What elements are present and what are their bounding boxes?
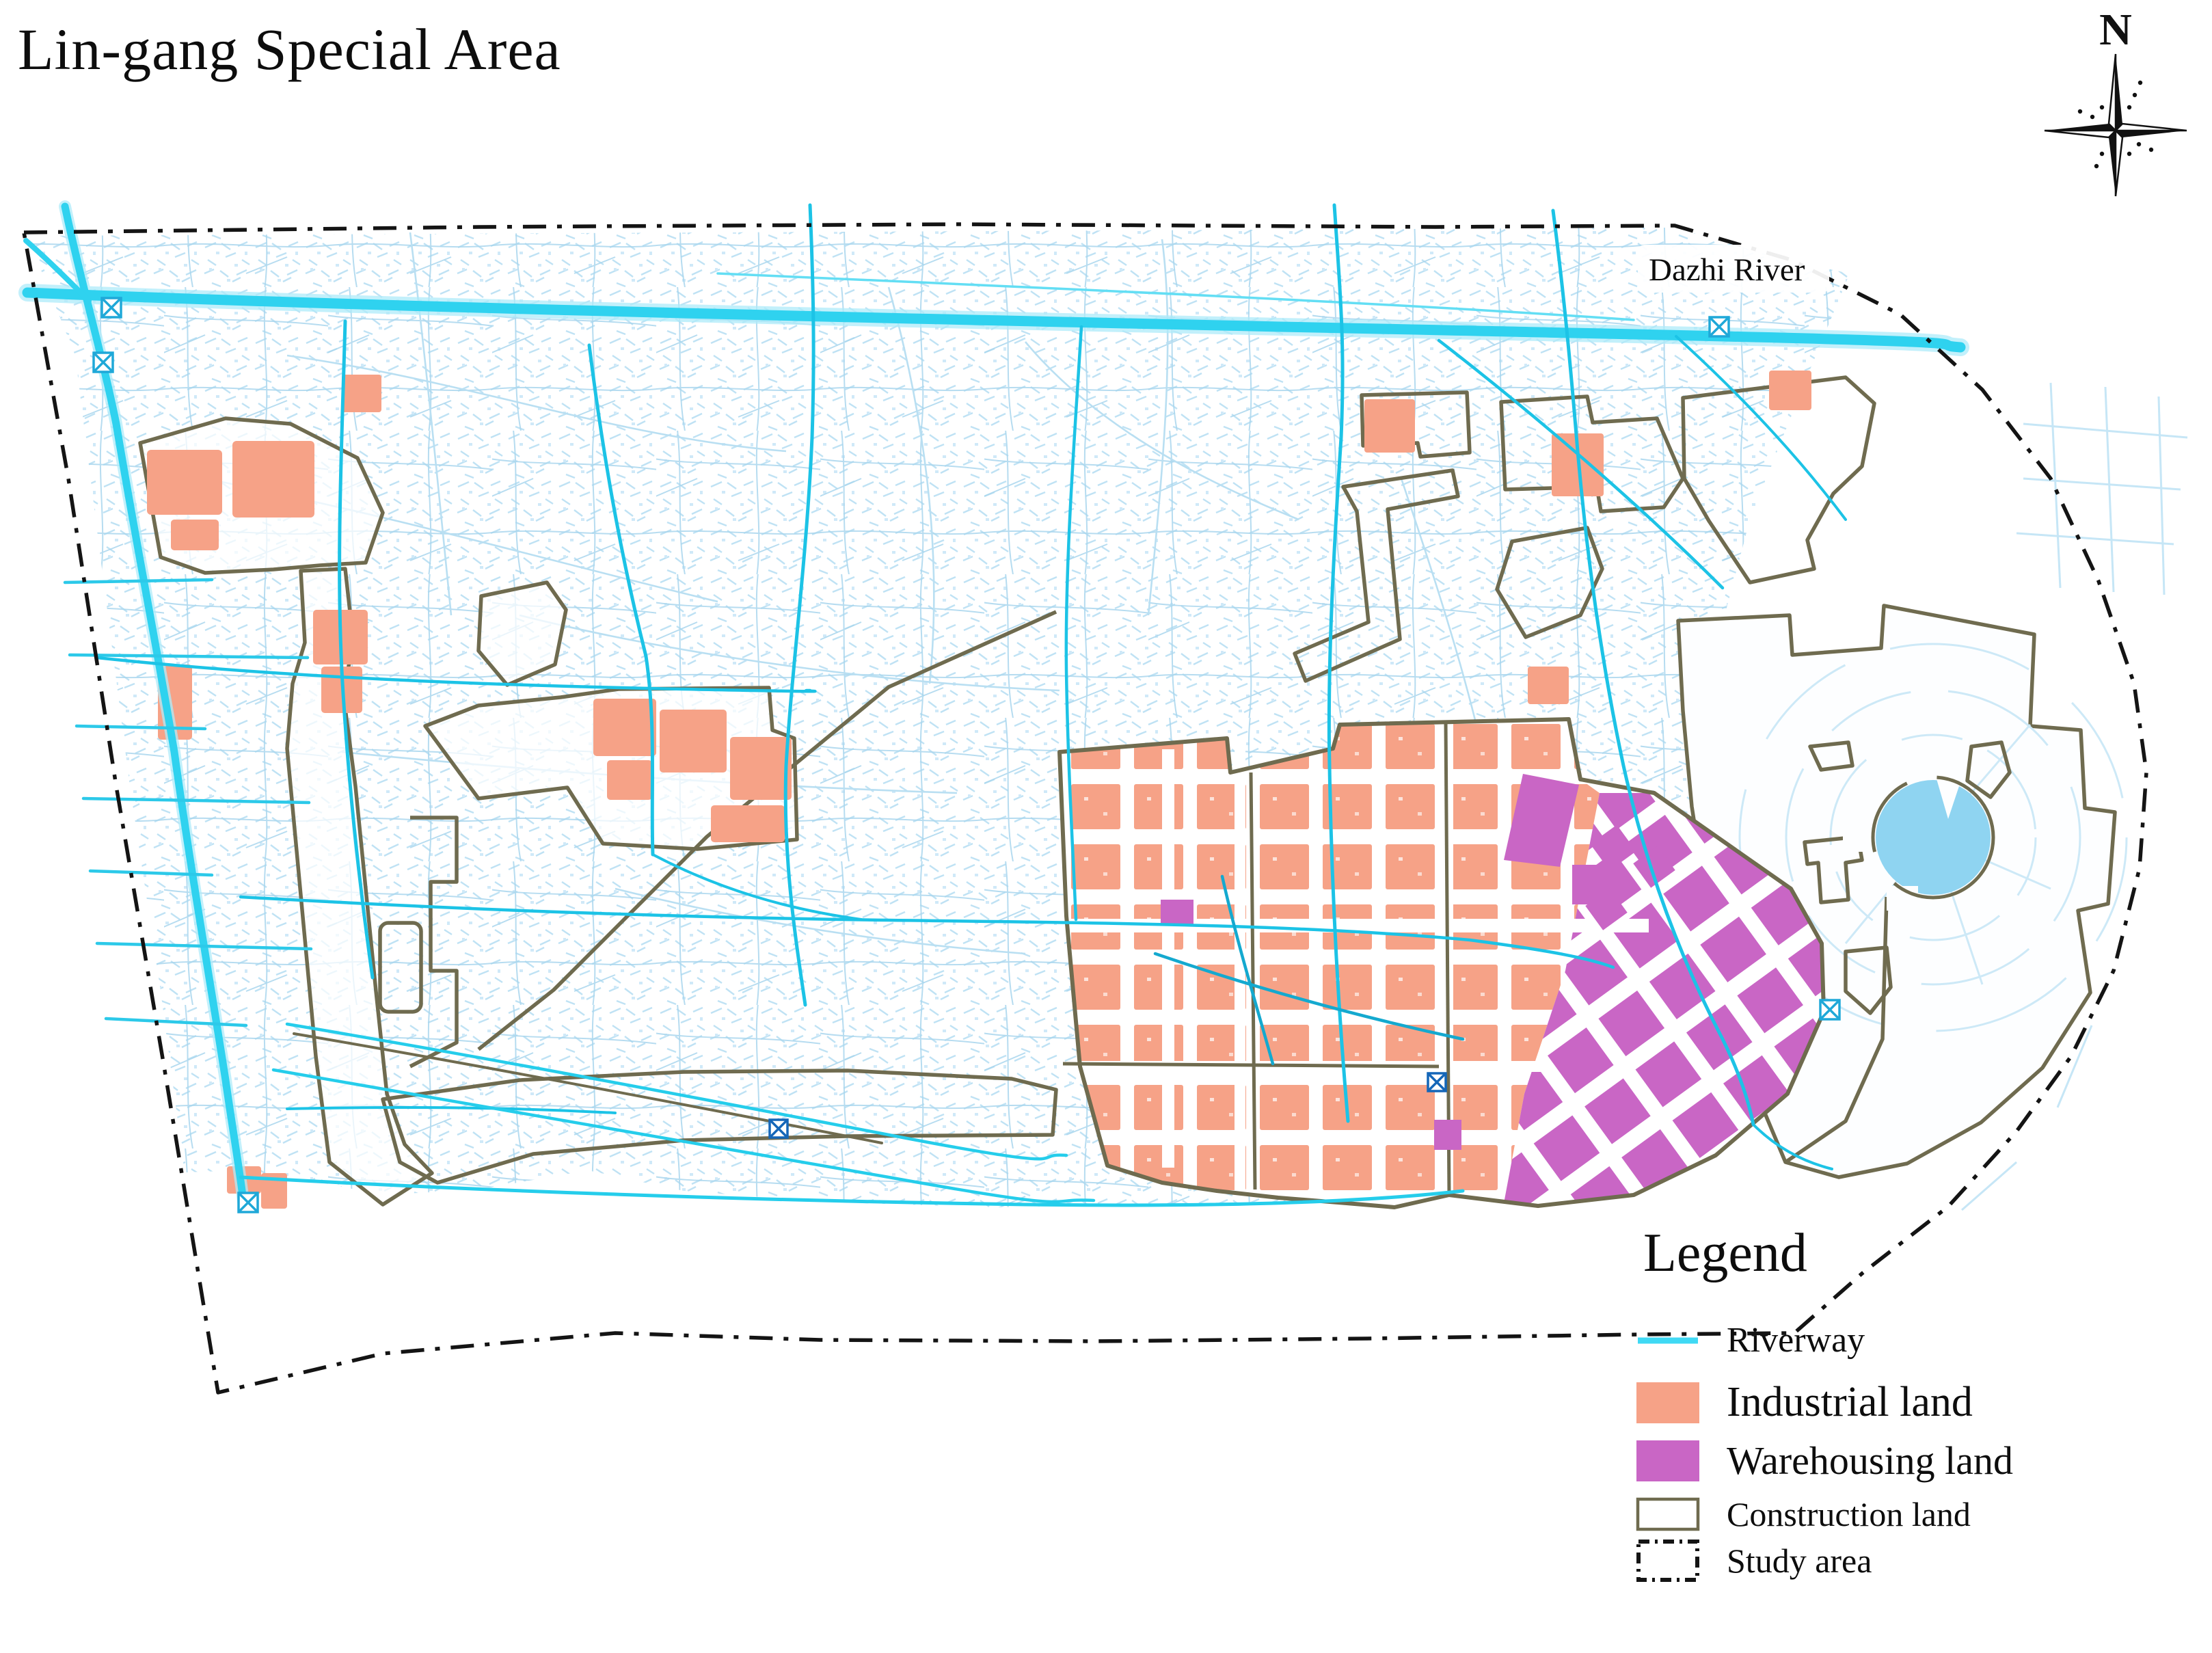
study-area-swatch-icon bbox=[1635, 1538, 1701, 1583]
legend-label-construction-land: Construction land bbox=[1727, 1494, 1971, 1534]
legend-label-industrial-land: Industrial land bbox=[1727, 1378, 1973, 1427]
compass: N bbox=[2040, 4, 2191, 209]
legend: Legend RiverwayIndustrial landWarehousin… bbox=[1635, 1222, 2182, 1594]
legend-item-construction-land: Construction land bbox=[1635, 1494, 2182, 1534]
legend-title: Legend bbox=[1643, 1222, 2182, 1285]
riverway-swatch-icon bbox=[1635, 1333, 1701, 1348]
legend-item-riverway: Riverway bbox=[1635, 1320, 2182, 1360]
industrial-land-swatch-icon bbox=[1635, 1381, 1701, 1425]
compass-n-label: N bbox=[2040, 4, 2191, 56]
legend-item-study-area: Study area bbox=[1635, 1538, 2182, 1583]
river-label-group: Dazhi River bbox=[1638, 245, 1829, 293]
construction-land-swatch-icon bbox=[1635, 1496, 1701, 1532]
warehousing-land-swatch-icon bbox=[1635, 1439, 1701, 1483]
legend-item-industrial-land: Industrial land bbox=[1635, 1378, 2182, 1427]
page-title: Lin-gang Special Area bbox=[18, 15, 561, 83]
legend-label-riverway: Riverway bbox=[1727, 1320, 1865, 1360]
figure: Dazhi River Lin-gang Special Area N bbox=[0, 0, 2212, 1653]
legend-item-warehousing-land: Warehousing land bbox=[1635, 1438, 2182, 1483]
legend-items: RiverwayIndustrial landWarehousing landC… bbox=[1635, 1320, 2182, 1583]
legend-label-study-area: Study area bbox=[1727, 1541, 1872, 1581]
river-label: Dazhi River bbox=[1649, 252, 1805, 288]
legend-label-warehousing-land: Warehousing land bbox=[1727, 1438, 2013, 1483]
